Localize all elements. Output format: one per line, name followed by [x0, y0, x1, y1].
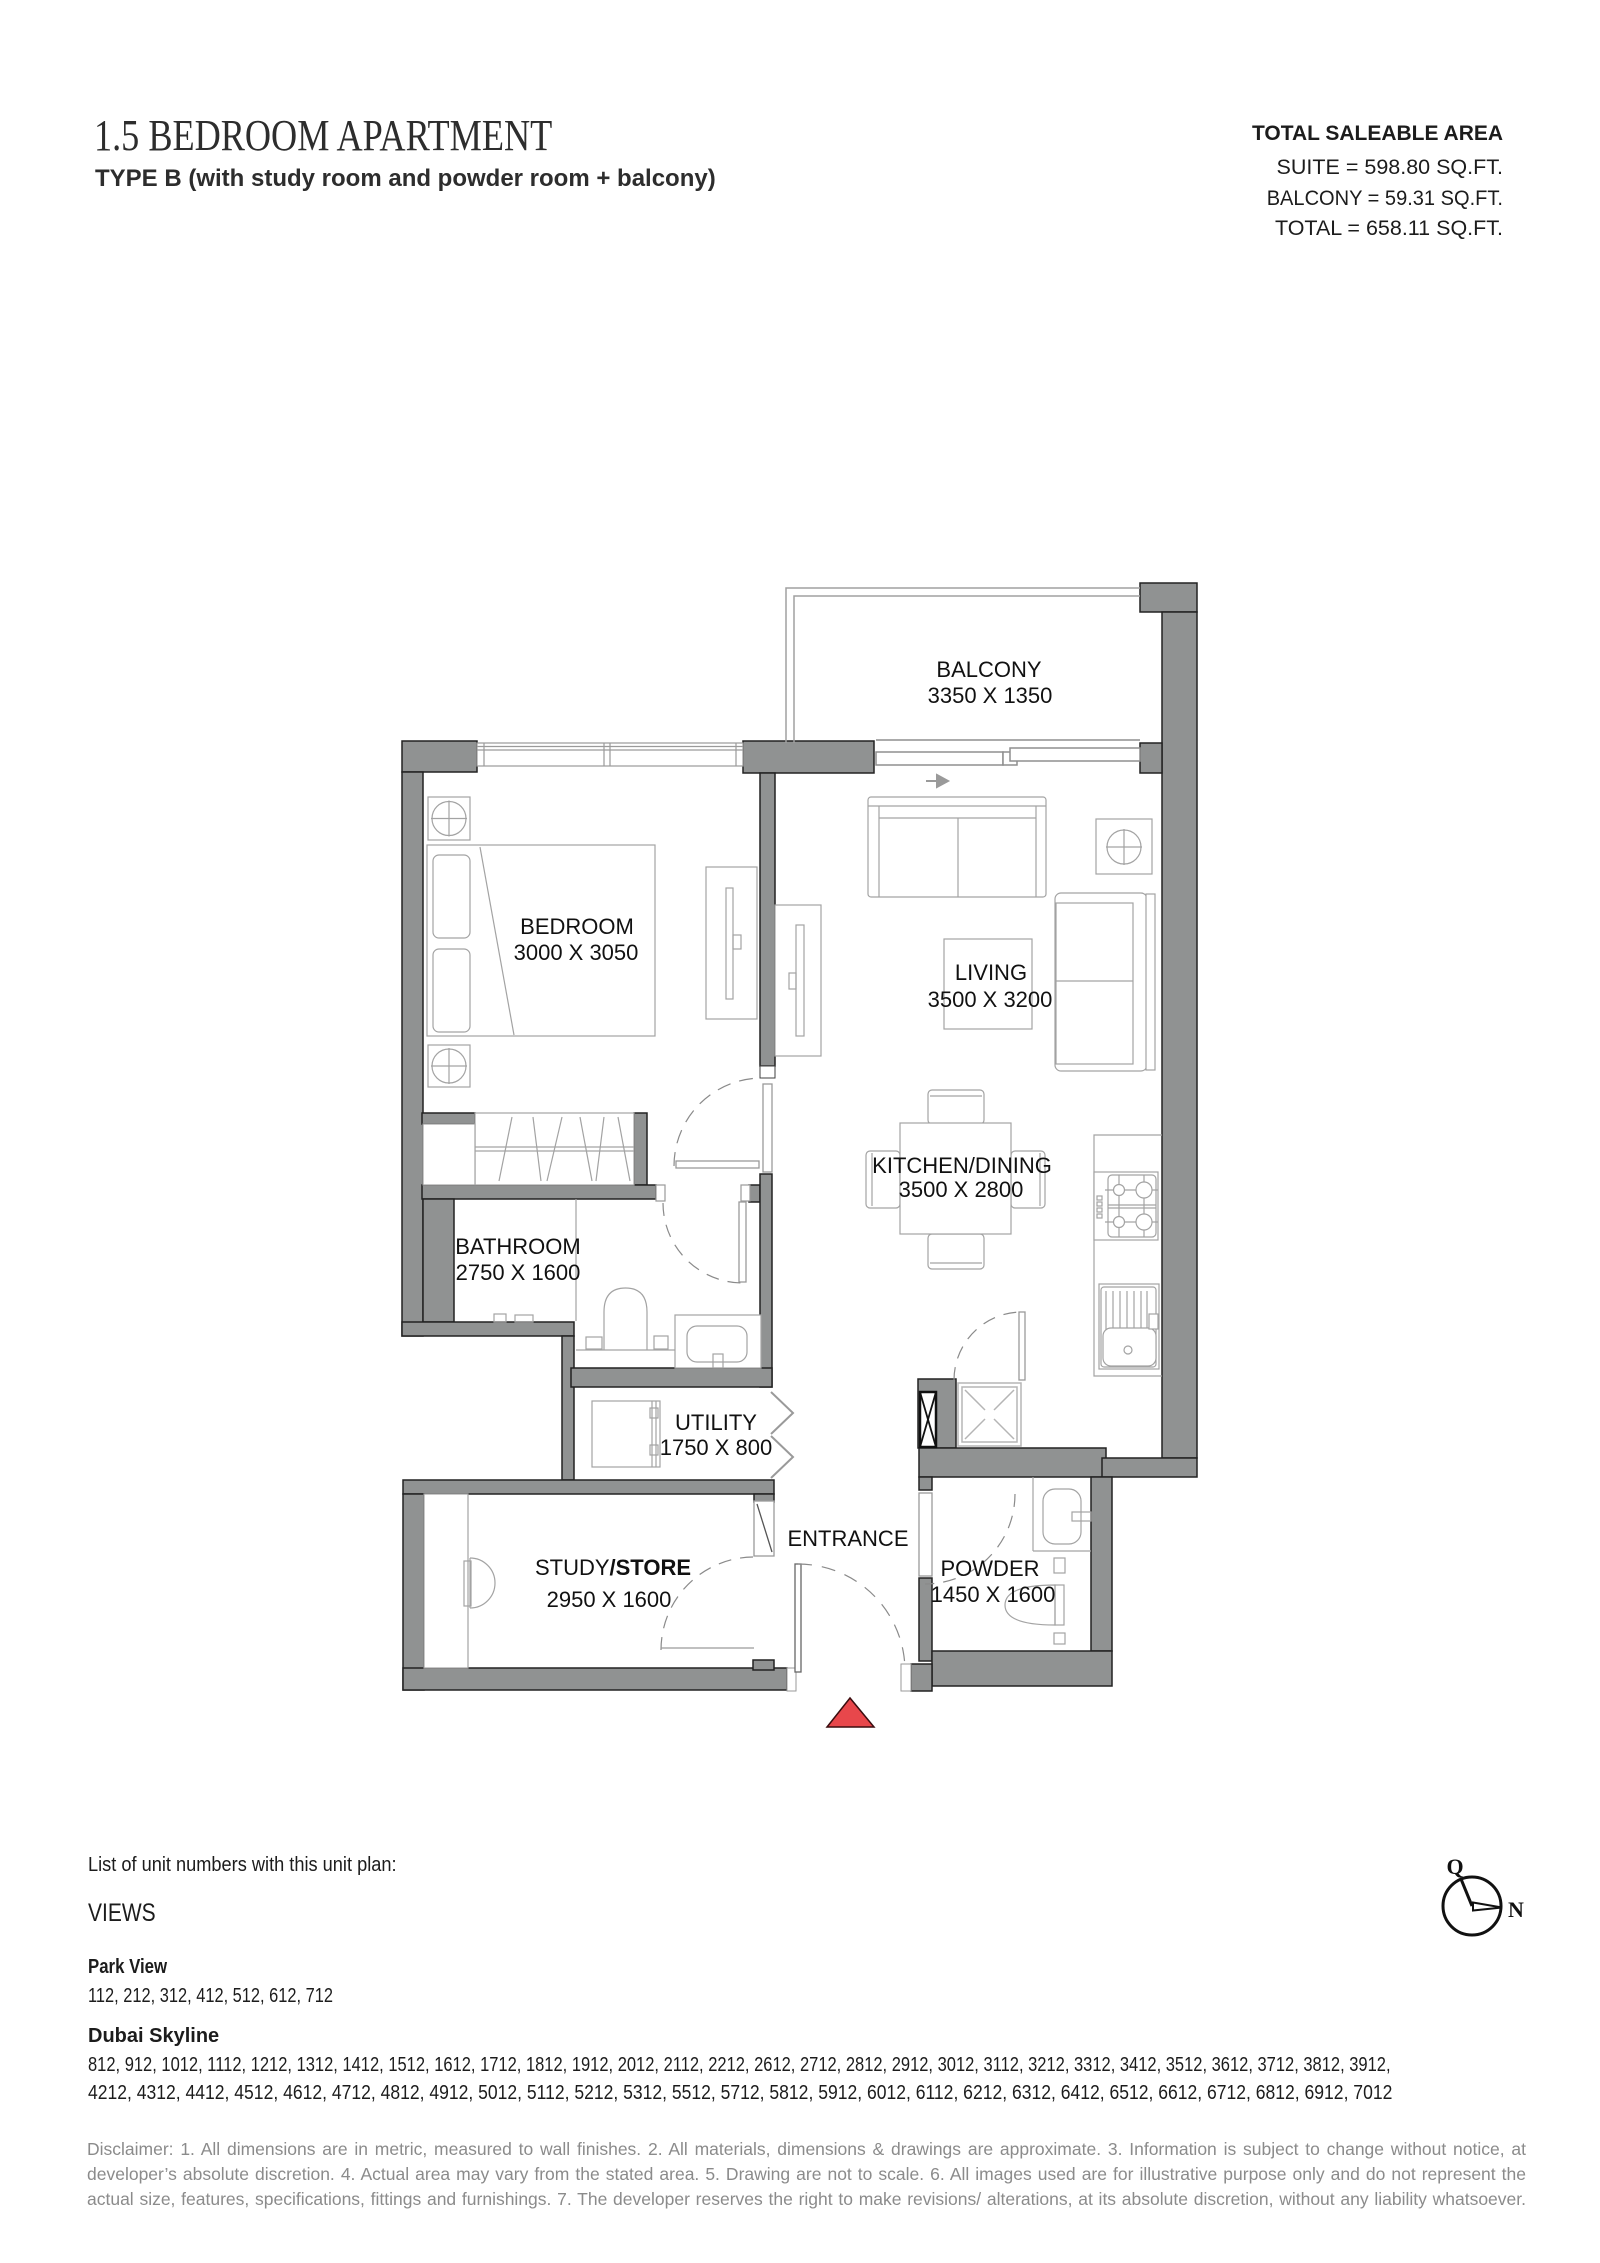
svg-text:Q: Q	[1446, 1854, 1463, 1879]
svg-text:STUDY/STORE: STUDY/STORE	[535, 1555, 691, 1580]
svg-text:3500 X 3200: 3500 X 3200	[928, 987, 1053, 1012]
svg-text:3000 X 3050: 3000 X 3050	[514, 940, 639, 965]
svg-text:POWDER: POWDER	[941, 1556, 1040, 1581]
svg-text:3350 X 1350: 3350 X 1350	[928, 683, 1053, 708]
svg-text:N: N	[1508, 1897, 1524, 1922]
svg-text:2750 X 1600: 2750 X 1600	[456, 1260, 581, 1285]
svg-text:1750 X 800: 1750 X 800	[660, 1435, 773, 1460]
svg-text:BATHROOM: BATHROOM	[455, 1234, 580, 1259]
svg-text:KITCHEN/DINING: KITCHEN/DINING	[872, 1153, 1052, 1178]
svg-text:UTILITY: UTILITY	[675, 1410, 757, 1435]
svg-text:1450 X 1600: 1450 X 1600	[931, 1582, 1056, 1607]
svg-text:2950 X 1600: 2950 X 1600	[547, 1587, 672, 1612]
svg-text:ENTRANCE: ENTRANCE	[787, 1526, 908, 1551]
svg-text:LIVING: LIVING	[955, 960, 1027, 985]
svg-text:BALCONY: BALCONY	[936, 657, 1041, 682]
svg-text:3500 X 2800: 3500 X 2800	[899, 1177, 1024, 1202]
svg-text:BEDROOM: BEDROOM	[520, 914, 634, 939]
